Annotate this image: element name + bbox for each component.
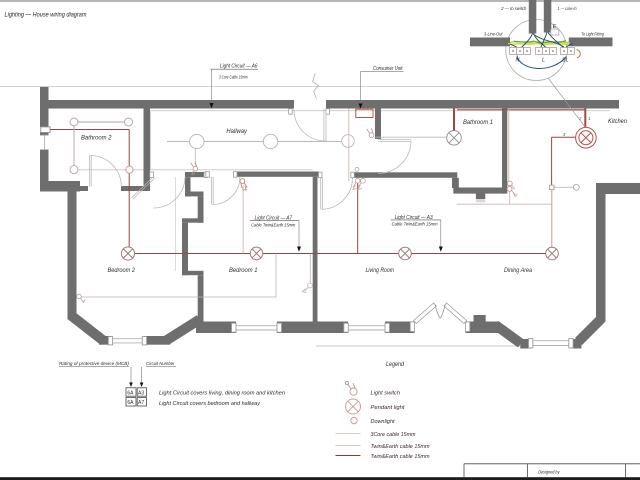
svg-text:Legend: Legend [386, 361, 404, 368]
svg-text:L: L [542, 57, 545, 63]
svg-text:To Light Fitting: To Light Fitting [581, 31, 604, 36]
svg-text:Rating of protective device (M: Rating of protective device (MCB) [59, 361, 129, 366]
svg-text:Cable Twin&Earth 15mm: Cable Twin&Earth 15mm [392, 222, 439, 227]
svg-text:Light Circuit covers living, d: Light Circuit covers living, dining room… [159, 391, 285, 397]
svg-text:Twin&Earth cable 15mm: Twin&Earth cable 15mm [371, 444, 431, 450]
svg-text:Downlight: Downlight [371, 419, 396, 425]
svg-text:2 — to switch: 2 — to switch [500, 6, 526, 11]
svg-text:Circuit Number: Circuit Number [146, 361, 175, 366]
svg-text:1: 1 [588, 116, 590, 121]
svg-text:Bedroom 1: Bedroom 1 [229, 267, 258, 274]
svg-text:A3: A3 [138, 391, 144, 397]
svg-text:Light Circuit covers bedroom a: Light Circuit covers bedroom and hallway [159, 401, 260, 407]
svg-text:Designed by: Designed by [538, 470, 560, 475]
svg-text:Cable Twin&Earth 15mm: Cable Twin&Earth 15mm [251, 222, 295, 227]
svg-text:Hallway: Hallway [226, 128, 247, 135]
svg-text:Light Circuit — A6: Light Circuit — A6 [220, 63, 258, 69]
svg-text:Lighting — House wiring diagra: Lighting — House wiring diagram [5, 11, 87, 18]
svg-text:SL: SL [562, 57, 569, 63]
svg-text:Bedroom 2: Bedroom 2 [108, 267, 136, 274]
svg-text:3-Line-Out: 3-Line-Out [484, 31, 503, 36]
svg-text:Consumer Unit: Consumer Unit [373, 66, 403, 72]
svg-text:Light switch: Light switch [371, 391, 401, 397]
svg-text:Dining Area: Dining Area [504, 267, 532, 274]
svg-text:6A: 6A [127, 400, 134, 406]
svg-text:3Core cable 15mm: 3Core cable 15mm [371, 432, 416, 438]
svg-text:3 Core Cable 15mm: 3 Core Cable 15mm [219, 74, 248, 79]
svg-text:N: N [516, 57, 520, 63]
svg-text:Kitchen: Kitchen [608, 118, 628, 125]
svg-text:Twin&Earth cable 15mm: Twin&Earth cable 15mm [371, 454, 431, 460]
svg-text:Living Room: Living Room [366, 267, 395, 274]
svg-text:Pendant light: Pendant light [371, 405, 406, 411]
svg-text:1 — Line-In: 1 — Line-In [558, 6, 577, 11]
svg-text:Bathroom 1: Bathroom 1 [463, 119, 493, 126]
svg-text:A7: A7 [138, 400, 144, 406]
svg-text:Bathroom 2: Bathroom 2 [81, 135, 112, 142]
svg-text:6A: 6A [127, 391, 134, 397]
